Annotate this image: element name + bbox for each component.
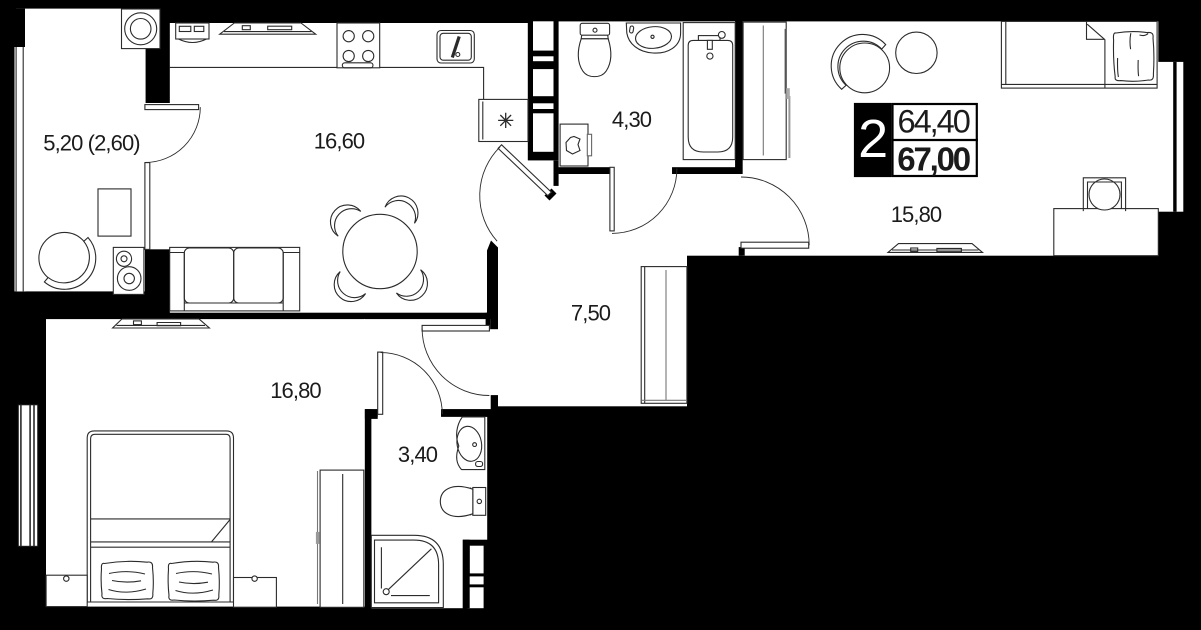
svg-text:5,20 (2,60): 5,20 (2,60) (43, 131, 140, 156)
svg-text:16,80: 16,80 (270, 378, 321, 403)
svg-text:67,00: 67,00 (897, 141, 969, 178)
svg-text:3,40: 3,40 (398, 442, 438, 467)
svg-text:7,50: 7,50 (571, 301, 611, 326)
svg-text:15,80: 15,80 (891, 202, 942, 227)
svg-text:64,40: 64,40 (898, 104, 970, 140)
svg-text:4,30: 4,30 (612, 107, 652, 132)
svg-text:16,60: 16,60 (314, 129, 365, 154)
svg-text:2: 2 (858, 109, 887, 169)
